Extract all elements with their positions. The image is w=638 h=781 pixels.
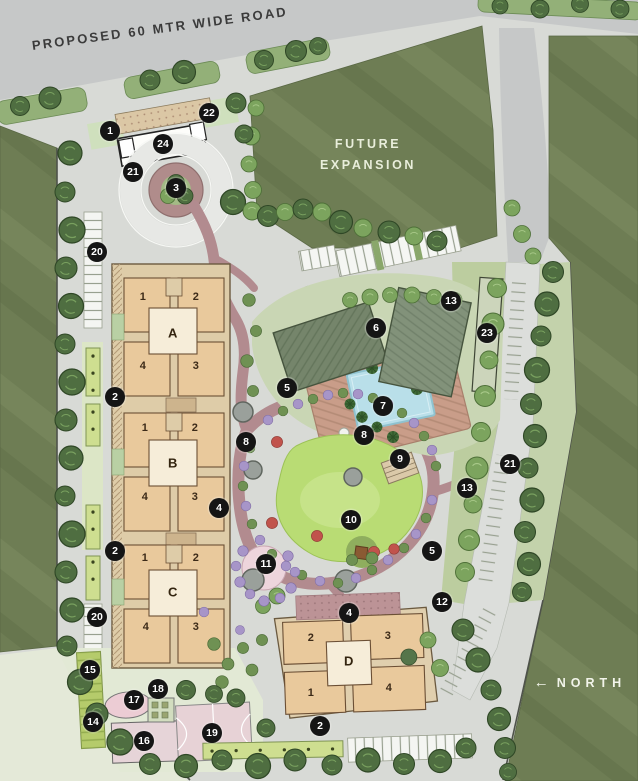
marker-18: 18 — [148, 679, 168, 699]
marker-10: 10 — [341, 510, 361, 530]
clubhouse-complex — [252, 273, 503, 464]
tower-a-unit-2-label: 2 — [193, 291, 200, 303]
tower-d-unit-4-label: 4 — [386, 682, 393, 694]
tower-a-label: A — [168, 326, 178, 341]
marker-14: 14 — [83, 712, 103, 732]
marker-19: 19 — [202, 723, 222, 743]
field-left — [0, 126, 57, 652]
tower-a-unit-4-label: 4 — [140, 360, 147, 372]
marker-11: 11 — [256, 554, 276, 574]
left-parking-and-benches — [82, 212, 103, 660]
marker-1: 1 — [100, 121, 120, 141]
tower-d-unit-1-label: 1 — [308, 687, 315, 699]
tower-a-unit-1-label: 1 — [140, 291, 147, 303]
north-arrow-icon: ← — [534, 674, 549, 691]
marker-13-a: 13 — [441, 291, 461, 311]
tower-b-unit-4-label: 4 — [142, 491, 149, 503]
marker-4-b: 4 — [339, 603, 359, 623]
tower-d-label: D — [344, 654, 354, 669]
marker-8-b: 8 — [354, 425, 374, 445]
marker-13-b: 13 — [457, 478, 477, 498]
site-master-plan: PROPOSED 60 MTR WIDE ROAD FUTURE EXPANSI… — [0, 0, 638, 781]
marker-12: 12 — [432, 592, 452, 612]
marker-2-c: 2 — [310, 716, 330, 736]
marker-9: 9 — [390, 449, 410, 469]
marker-5-a: 5 — [422, 541, 442, 561]
marker-5-b: 5 — [277, 378, 297, 398]
marker-8-a: 8 — [236, 432, 256, 452]
north-indicator: ← NORTH — [520, 674, 638, 691]
marker-17: 17 — [124, 690, 144, 710]
tower-c-unit-2-label: 2 — [193, 552, 200, 564]
tower-b-unit-2-label: 2 — [192, 422, 199, 434]
tower-a-unit-3-label: 3 — [193, 360, 200, 372]
tower-d-unit-2-label: 2 — [308, 632, 315, 644]
marker-20-a: 20 — [87, 242, 107, 262]
north-label: NORTH — [557, 676, 626, 690]
tower-b-unit-3-label: 3 — [192, 491, 199, 503]
marker-6: 6 — [366, 318, 386, 338]
marker-16: 16 — [134, 731, 154, 751]
marker-23: 23 — [477, 323, 497, 343]
tower-c-label: C — [168, 585, 178, 600]
marker-22: 22 — [199, 103, 219, 123]
marker-20-b: 20 — [87, 607, 107, 627]
tower-b — [112, 413, 224, 547]
tower-b-unit-1-label: 1 — [142, 422, 149, 434]
tower-c-unit-4-label: 4 — [143, 621, 150, 633]
tower-b-label: B — [168, 456, 178, 471]
marker-2-b: 2 — [105, 541, 125, 561]
future-expansion-label: FUTURE EXPANSION — [288, 134, 448, 175]
seating-deck — [148, 698, 174, 722]
marker-21-b: 21 — [500, 454, 520, 474]
marker-7: 7 — [373, 396, 393, 416]
marker-15: 15 — [80, 660, 100, 680]
marker-4-a: 4 — [209, 498, 229, 518]
tower-c-unit-3-label: 3 — [193, 621, 200, 633]
tower-d-unit-3-label: 3 — [385, 630, 392, 642]
marker-21-a: 21 — [123, 162, 143, 182]
marker-2-a: 2 — [105, 387, 125, 407]
tower-c-unit-1-label: 1 — [142, 552, 149, 564]
marker-3: 3 — [166, 178, 186, 198]
tower-a — [112, 278, 224, 412]
marker-24: 24 — [153, 134, 173, 154]
